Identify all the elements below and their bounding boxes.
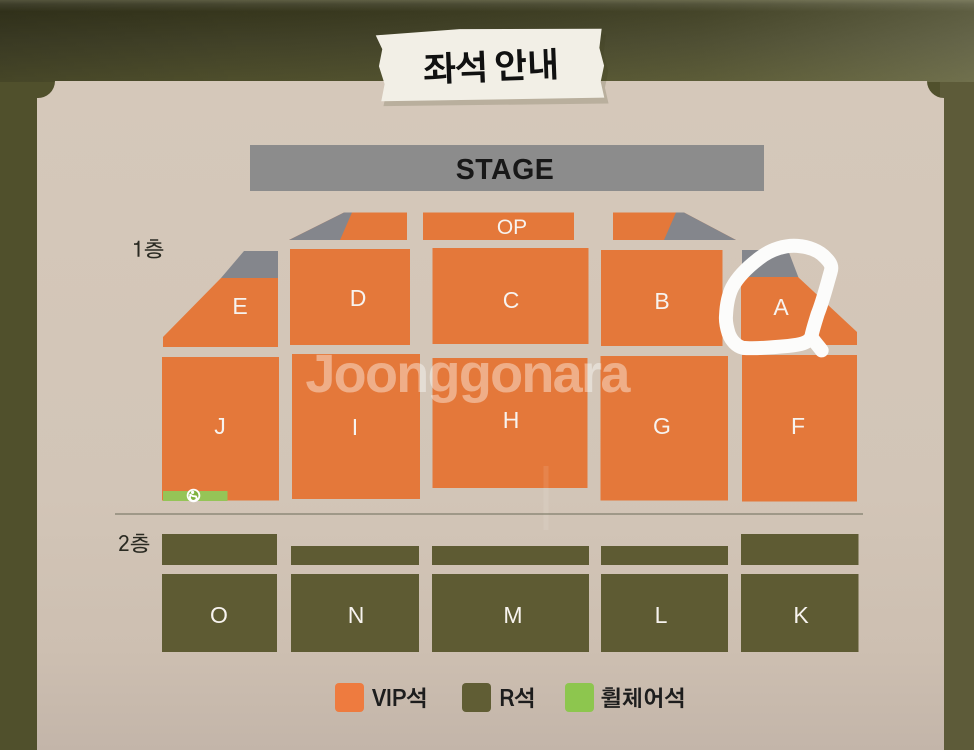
svg-text:E: E [232,293,247,319]
svg-text:M: M [503,602,522,628]
svg-text:OP: OP [497,216,527,239]
svg-text:F: F [791,413,805,439]
svg-text:G: G [653,413,671,439]
svg-text:H: H [503,407,520,433]
svg-text:B: B [654,288,669,314]
svg-text:O: O [210,602,228,628]
svg-text:N: N [348,602,365,628]
svg-text:I: I [352,414,358,440]
svg-text:J: J [214,413,226,439]
svg-text:STAGE: STAGE [456,154,555,186]
svg-text:K: K [793,602,809,628]
svg-text:C: C [503,287,520,313]
svg-text:Joonggonara: Joonggonara [305,344,631,404]
svg-text:D: D [350,285,367,311]
svg-text:A: A [773,294,789,320]
svg-text:L: L [655,602,668,628]
